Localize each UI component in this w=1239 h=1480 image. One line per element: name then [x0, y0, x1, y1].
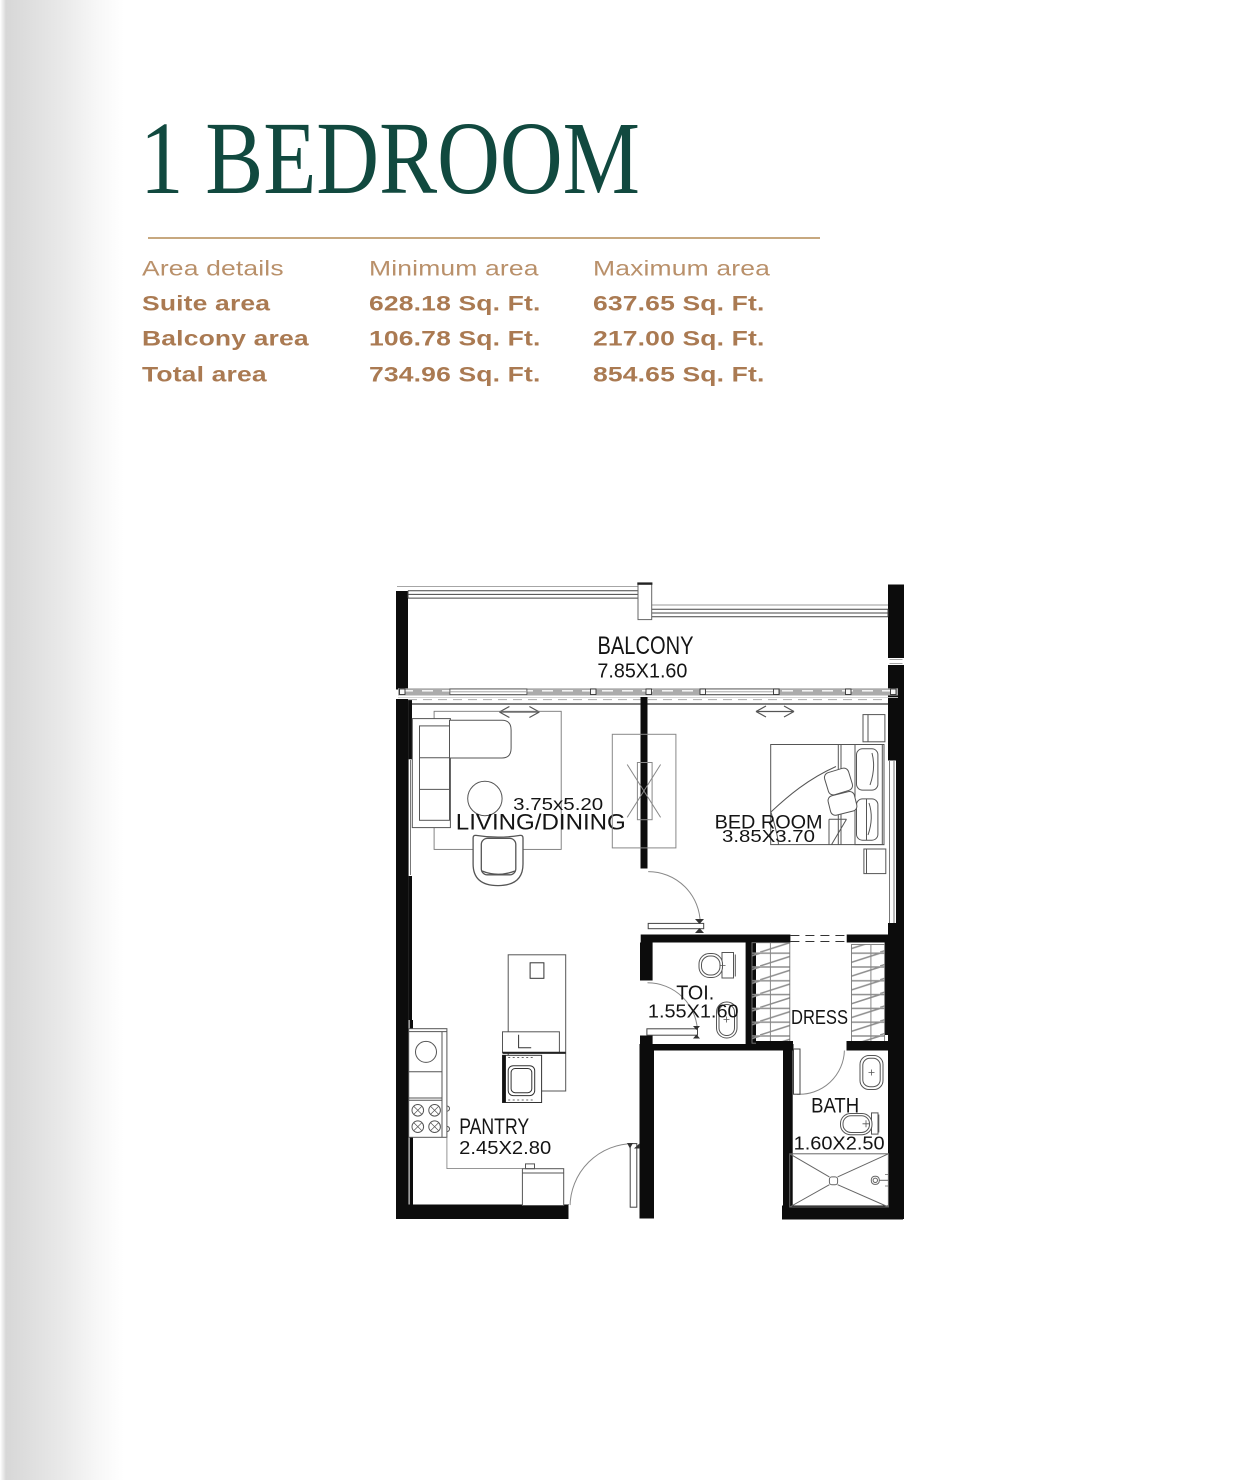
svg-text:DRESS: DRESS — [791, 1007, 848, 1029]
svg-text:1.55X1.60: 1.55X1.60 — [648, 1002, 739, 1022]
svg-text:LIVING/DINING: LIVING/DINING — [456, 809, 626, 834]
svg-text:3.85X3.70: 3.85X3.70 — [722, 826, 815, 846]
svg-text:BATH: BATH — [811, 1095, 859, 1118]
svg-text:PANTRY: PANTRY — [459, 1114, 529, 1139]
svg-text:BALCONY: BALCONY — [598, 632, 694, 660]
svg-text:7.85X1.60: 7.85X1.60 — [597, 661, 687, 683]
svg-text:2.45X2.80: 2.45X2.80 — [459, 1138, 551, 1158]
svg-text:1.60X2.50: 1.60X2.50 — [794, 1134, 885, 1154]
